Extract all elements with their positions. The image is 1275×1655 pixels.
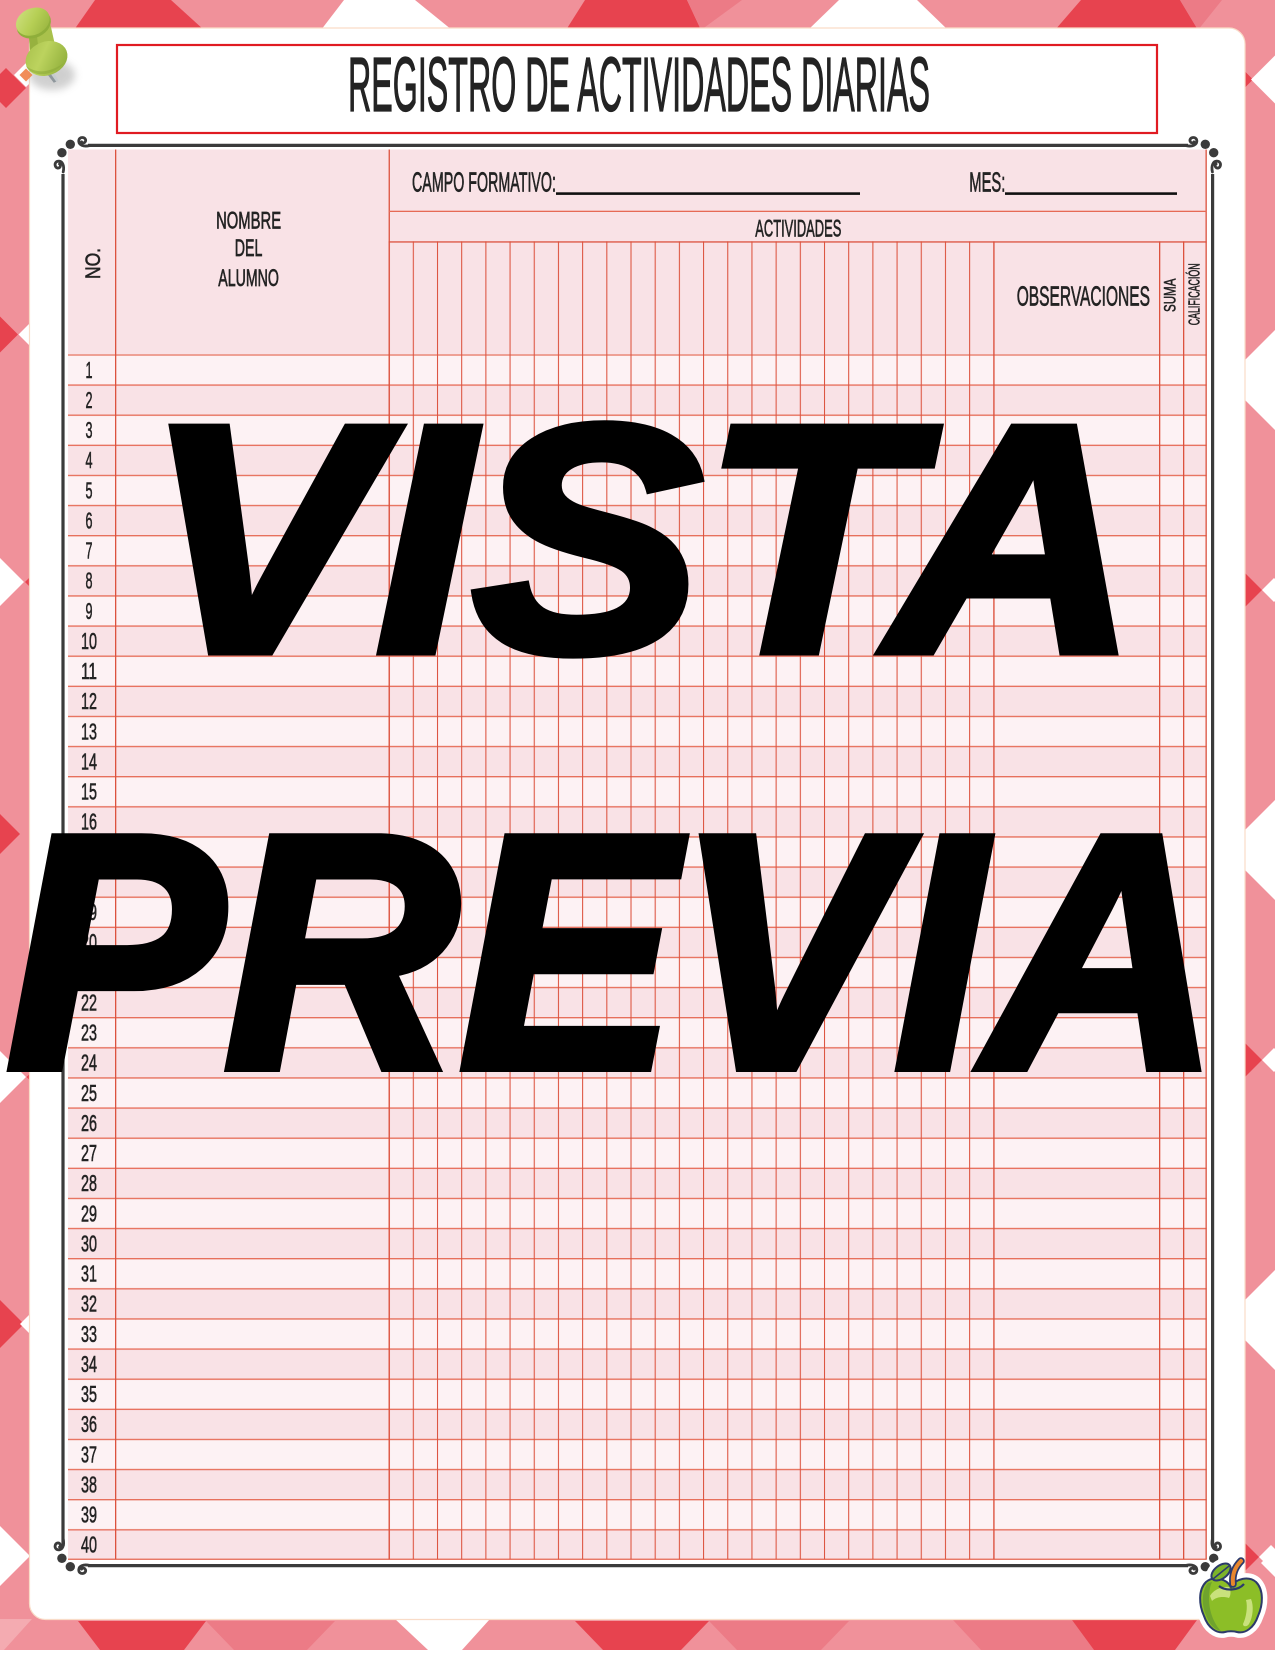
svg-text:MES:: MES: [969,166,1005,197]
svg-text:3: 3 [86,417,93,443]
svg-text:8: 8 [86,568,93,594]
svg-text:30: 30 [81,1231,97,1257]
svg-text:32: 32 [81,1291,97,1317]
svg-text:38: 38 [81,1472,97,1498]
svg-text:PREVIA: PREVIA [6,766,1220,1139]
svg-text:34: 34 [81,1351,97,1377]
svg-text:33: 33 [81,1321,97,1347]
svg-text:36: 36 [81,1411,97,1437]
svg-text:9: 9 [86,598,93,624]
svg-text:12: 12 [81,688,97,714]
svg-text:5: 5 [86,477,93,503]
svg-text:31: 31 [81,1261,97,1287]
svg-text:28: 28 [81,1170,97,1196]
svg-text:REGISTRO DE ACTIVIDADES DIARIA: REGISTRO DE ACTIVIDADES DIARIAS [348,42,930,128]
svg-text:NOMBRE: NOMBRE [216,207,281,234]
svg-text:4: 4 [86,447,93,473]
svg-text:2: 2 [86,387,93,413]
svg-text:40: 40 [81,1532,97,1558]
svg-text:SUMA: SUMA [1162,279,1180,312]
svg-text:6: 6 [86,508,93,534]
svg-text:DEL: DEL [235,235,263,262]
svg-text:NO.: NO. [81,248,105,279]
svg-text:1: 1 [86,357,93,383]
svg-text:29: 29 [81,1200,97,1226]
svg-text:37: 37 [81,1441,97,1467]
svg-text:OBSERVACIONES: OBSERVACIONES [1017,280,1150,311]
svg-text:11: 11 [81,658,97,684]
svg-text:10: 10 [81,628,97,654]
svg-text:VISTA: VISTA [145,358,1138,720]
svg-text:ACTIVIDADES: ACTIVIDADES [755,216,841,243]
svg-text:39: 39 [81,1502,97,1528]
svg-text:27: 27 [81,1140,97,1166]
svg-text:CAMPO FORMATIVO:: CAMPO FORMATIVO: [412,166,556,197]
svg-text:ALUMNO: ALUMNO [218,265,279,292]
svg-text:13: 13 [81,718,97,744]
svg-text:7: 7 [86,538,93,564]
svg-text:35: 35 [81,1381,97,1407]
svg-text:CALIFICACIÓN: CALIFICACIÓN [1187,263,1204,325]
